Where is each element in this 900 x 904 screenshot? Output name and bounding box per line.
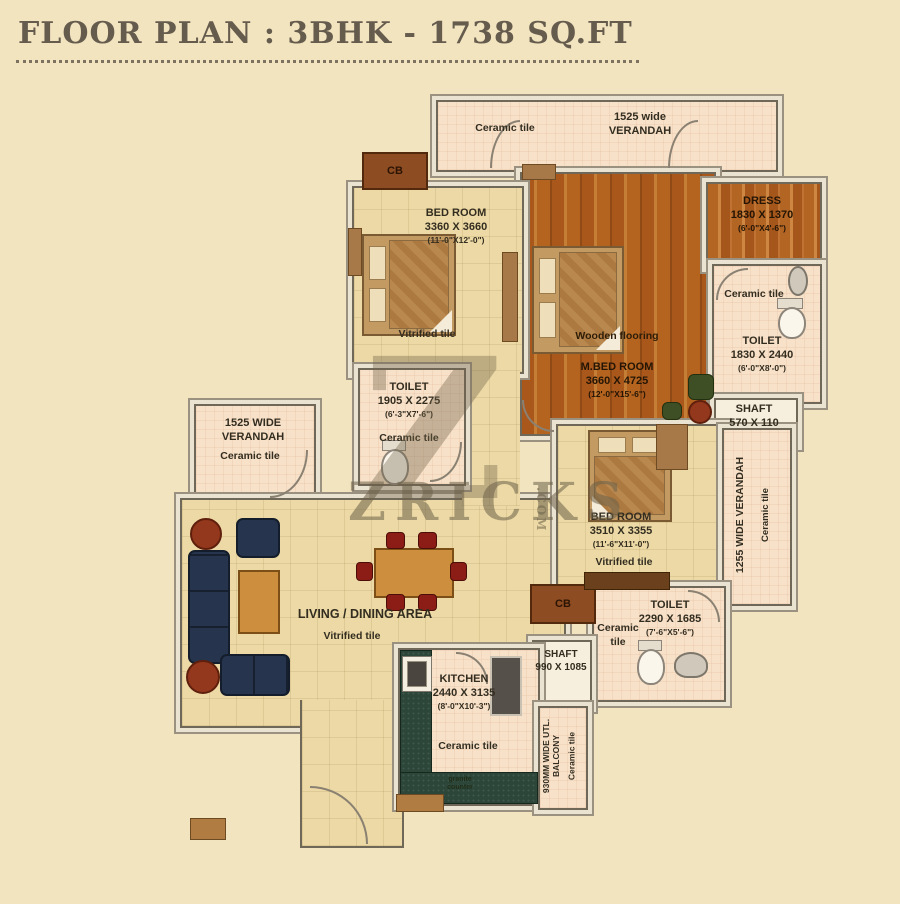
wardrobe-bedroom2 xyxy=(656,424,688,470)
wardrobe-bedroom1 xyxy=(502,252,518,342)
toilet2-name: TOILET xyxy=(639,598,701,612)
bed-bedroom1 xyxy=(362,234,456,336)
toilet-master-ft: (6'-0"X8'-0") xyxy=(731,363,793,374)
label-utility-tile: Ceramic tile xyxy=(566,732,577,780)
wc-toilet-common xyxy=(381,449,409,485)
label-granite-counter: granite counter xyxy=(437,776,483,793)
basin-toilet-master xyxy=(788,266,808,296)
bedroom1-name: BED ROOM xyxy=(425,206,487,220)
dining-chair xyxy=(418,532,437,549)
pillow xyxy=(369,246,386,280)
armchair xyxy=(236,518,280,558)
toilet-common-name: TOILET xyxy=(378,380,440,394)
pillow xyxy=(369,288,386,322)
verandah-top-name: VERANDAH xyxy=(609,124,671,138)
label-verandah-right: 1255 WIDE VERANDAH xyxy=(734,457,748,573)
label-living-tile: Vitrified tile xyxy=(324,630,381,644)
kitchen-sink-basin xyxy=(407,661,427,687)
pouf-master-2 xyxy=(662,402,682,420)
label-toilet-common-tile: Ceramic tile xyxy=(379,432,439,446)
master-name: M.BED ROOM xyxy=(581,360,654,374)
side-table-master xyxy=(688,400,712,424)
label-utility-balcony: 930MM WIDE UTL. BALCONY xyxy=(541,710,561,802)
door-lintel-master xyxy=(522,164,556,180)
side-table-bedroom1 xyxy=(348,228,362,276)
bedroom2-ft: (11'-6"X11'-0") xyxy=(590,539,652,550)
label-kitchen: KITCHEN 2440 X 3135 (8'-0"X10'-3") xyxy=(433,672,495,712)
pillow xyxy=(539,302,556,338)
label-verandah-left: 1525 WIDE VERANDAH xyxy=(222,416,284,445)
dress-mm: 1830 X 1370 xyxy=(731,208,793,222)
bedroom1-mm: 3360 X 3660 xyxy=(425,220,487,234)
cupboard-box-2: CB xyxy=(530,584,596,624)
room-verandah-top xyxy=(436,100,778,172)
dining-chair xyxy=(356,562,373,581)
basin-toilet2 xyxy=(674,652,708,678)
label-verandah-top-tile: Ceramic tile xyxy=(475,122,535,136)
label-shaft-right: SHAFT 570 X 110 xyxy=(729,402,779,431)
label-living-dining: LIVING / DINING AREA xyxy=(298,606,432,622)
room-verandah-right xyxy=(722,428,792,606)
label-toilet-master: TOILET 1830 X 2440 (6'-0"X8'-0") xyxy=(731,334,793,374)
verandah-top-size: 1525 wide xyxy=(609,110,671,124)
shaft-right-name: SHAFT xyxy=(729,402,779,416)
label-bedroom1-tile: Vitrified tile xyxy=(399,328,456,342)
loveseat xyxy=(220,654,290,696)
shaft-bottom-mm: 990 X 1085 xyxy=(535,661,586,674)
page-title: FLOOR PLAN : 3BHK - 1738 SQ.FT xyxy=(16,16,639,63)
kitchen-name: KITCHEN xyxy=(433,672,495,686)
label-toilet-common: TOILET 1905 X 2275 (6'-3"X7'-6") xyxy=(378,380,440,420)
coffee-table xyxy=(238,570,280,634)
round-table-2 xyxy=(186,660,220,694)
cb2-label: CB xyxy=(555,598,571,610)
bedroom2-name: BED ROOM xyxy=(590,510,652,524)
wc-toilet2 xyxy=(637,649,665,685)
label-kitchen-tile: Ceramic tile xyxy=(438,740,498,754)
pillow xyxy=(539,258,556,294)
kitchen-step xyxy=(396,794,444,812)
label-bedroom1: BED ROOM 3360 X 3660 (11'-0"X12'-0") xyxy=(425,206,487,246)
kitchen-mm: 2440 X 3135 xyxy=(433,686,495,700)
bedroom2-mm: 3510 X 3355 xyxy=(590,524,652,538)
pouf-master xyxy=(688,374,714,400)
shaft-bottom-name: SHAFT xyxy=(535,648,586,661)
shaft-right-mm: 570 X 110 xyxy=(729,416,779,430)
cb1-label: CB xyxy=(387,165,403,177)
toilet2-mm: 2290 X 1685 xyxy=(639,612,701,626)
label-shaft-bottom: SHAFT 990 X 1085 xyxy=(535,648,586,674)
kitchen-ft: (8'-0"X10'-3") xyxy=(433,701,495,712)
toilet-common-mm: 1905 X 2275 xyxy=(378,394,440,408)
round-table-1 xyxy=(190,518,222,550)
label-verandah-right-tile: Ceramic tile xyxy=(760,488,772,542)
pillow xyxy=(598,437,626,453)
bedroom1-ft: (11'-0"X12'-0") xyxy=(425,235,487,246)
entrance-step xyxy=(190,818,226,840)
toilet2-ft: (7'-6"X5'-6") xyxy=(639,627,701,638)
label-master-flooring: Wooden flooring xyxy=(575,330,658,344)
dresser-bedroom2 xyxy=(584,572,670,590)
toilet-master-mm: 1830 X 2440 xyxy=(731,348,793,362)
sofa-three-seat xyxy=(188,550,230,664)
label-bedroom2-tile: Vitrified tile xyxy=(596,556,653,570)
label-master-bedroom: M.BED ROOM 3660 X 4725 (12'-0"X15'-6") xyxy=(581,360,654,400)
dining-table xyxy=(374,548,454,598)
label-toilet2: TOILET 2290 X 1685 (7'-6"X5'-6") xyxy=(639,598,701,638)
label-bedroom2: BED ROOM 3510 X 3355 (11'-6"X11'-0") xyxy=(590,510,652,550)
corridor-floor xyxy=(462,370,520,506)
label-verandah-left-tile: Ceramic tile xyxy=(220,450,280,464)
master-ft: (12'-0"X15'-6") xyxy=(581,389,654,400)
label-verandah-top: 1525 wide VERANDAH xyxy=(609,110,671,139)
toilet-common-ft: (6'-3"X7'-6") xyxy=(378,409,440,420)
label-toilet-master-tile: Ceramic tile xyxy=(724,288,784,302)
verandah-left-size: 1525 WIDE xyxy=(222,416,284,430)
label-toilet2-tile: Ceramic tile xyxy=(593,622,643,649)
verandah-left-name: VERANDAH xyxy=(222,430,284,444)
dress-name: DRESS xyxy=(731,194,793,208)
cupboard-box-1: CB xyxy=(362,152,428,190)
label-dress: DRESS 1830 X 1370 (6'-0"X4'-6") xyxy=(731,194,793,234)
dress-ft: (6'-0"X4'-6") xyxy=(731,223,793,234)
dining-chair xyxy=(386,532,405,549)
toilet-master-name: TOILET xyxy=(731,334,793,348)
master-mm: 3660 X 4725 xyxy=(581,374,654,388)
dining-chair xyxy=(450,562,467,581)
